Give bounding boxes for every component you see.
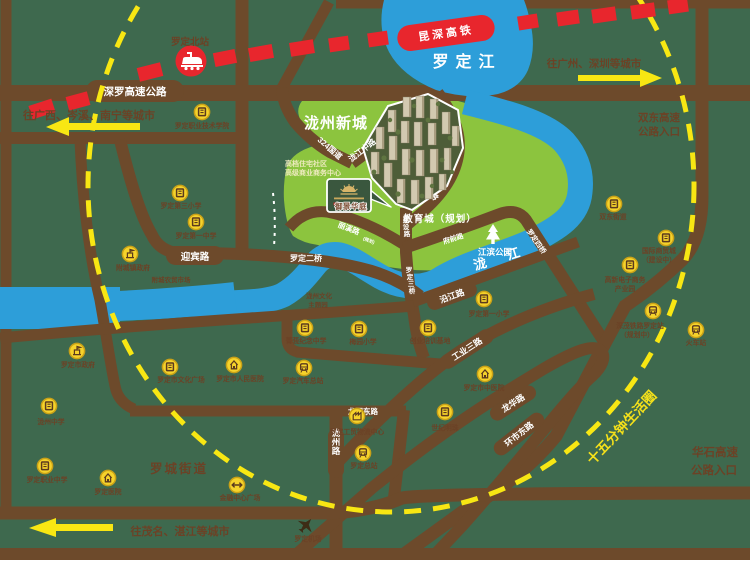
svg-text:华石高速: 华石高速 (692, 445, 738, 459)
svg-text:附城农贸市场: 附城农贸市场 (152, 275, 192, 284)
svg-text:国际商贸城: 国际商贸城 (642, 246, 676, 255)
svg-text:高新电子商务: 高新电子商务 (605, 275, 646, 284)
svg-text:金融中心广场: 金融中心广场 (219, 493, 261, 502)
svg-text:梅园小学: 梅园小学 (349, 337, 376, 346)
svg-text:往广西、岑溪、南宁等城市: 往广西、岑溪、南宁等城市 (23, 108, 155, 122)
svg-text:罗定江: 罗定江 (432, 52, 501, 71)
svg-text:罗定市文化广场: 罗定市文化广场 (157, 375, 205, 384)
svg-text:菁莪纪念中学: 菁莪纪念中学 (286, 336, 327, 345)
svg-text:往茂名、湛江等城市: 往茂名、湛江等城市 (131, 524, 230, 538)
svg-text:罗定二桥: 罗定二桥 (290, 253, 323, 263)
svg-text:罗定医院: 罗定医院 (94, 487, 121, 496)
svg-text:罗定机场: 罗定机场 (294, 534, 321, 543)
svg-text:罗定汽车总站: 罗定汽车总站 (283, 376, 324, 385)
svg-text:火车站: 火车站 (686, 338, 707, 347)
svg-text:罗定总站: 罗定总站 (350, 461, 377, 470)
svg-text:罗定市中医院: 罗定市中医院 (464, 383, 505, 392)
svg-text:产业园: 产业园 (615, 284, 636, 293)
svg-text:迎宾路: 迎宾路 (181, 251, 210, 263)
svg-text:高级商业商务中心: 高级商业商务中心 (285, 168, 341, 177)
svg-text:（规划中）: （规划中） (620, 330, 654, 339)
svg-text:双东街道: 双东街道 (599, 212, 626, 221)
svg-text:教育城（规划）: 教育城（规划） (402, 213, 477, 225)
svg-text:罗定第三小学: 罗定第三小学 (161, 201, 202, 210)
svg-text:罗定市人民医院: 罗定市人民医院 (216, 374, 264, 383)
svg-text:罗定第一小学: 罗定第一小学 (469, 309, 510, 318)
svg-text:（建设中）: （建设中） (642, 255, 676, 264)
svg-text:主题园: 主题园 (308, 300, 328, 309)
svg-text:泷州中学: 泷州中学 (37, 417, 64, 426)
svg-text:往广州、深圳等城市: 往广州、深圳等城市 (547, 57, 642, 70)
svg-text:罗定市政府: 罗定市政府 (61, 360, 95, 369)
svg-text:深茂铁路罗定站: 深茂铁路罗定站 (616, 321, 664, 330)
svg-text:罗城街道: 罗城街道 (150, 461, 208, 476)
svg-text:世纪明珠: 世纪明珠 (431, 423, 458, 432)
svg-text:泷州文化: 泷州文化 (306, 291, 333, 300)
svg-text:罗定第一中学: 罗定第一中学 (176, 231, 217, 240)
svg-text:泷州新城: 泷州新城 (304, 114, 368, 132)
svg-text:罗定北站: 罗定北站 (171, 36, 210, 48)
svg-text:罗定工贸物流中心: 罗定工贸物流中心 (330, 427, 385, 436)
svg-text:创业培训基地: 创业培训基地 (409, 336, 451, 345)
svg-text:深罗高速公路: 深罗高速公路 (104, 85, 167, 98)
svg-text:罗定职业技术学院: 罗定职业技术学院 (175, 121, 230, 130)
svg-text:御景华庭: 御景华庭 (334, 201, 367, 211)
svg-text:公路入口: 公路入口 (638, 125, 680, 138)
svg-text:江滨公园: 江滨公园 (478, 247, 512, 257)
svg-text:公路入口: 公路入口 (691, 463, 737, 477)
svg-text:双东高速: 双东高速 (637, 111, 680, 124)
svg-text:罗定职业中学: 罗定职业中学 (27, 475, 68, 484)
svg-text:附城镇政府: 附城镇政府 (116, 263, 150, 272)
svg-text:高档住宅社区: 高档住宅社区 (285, 159, 327, 168)
